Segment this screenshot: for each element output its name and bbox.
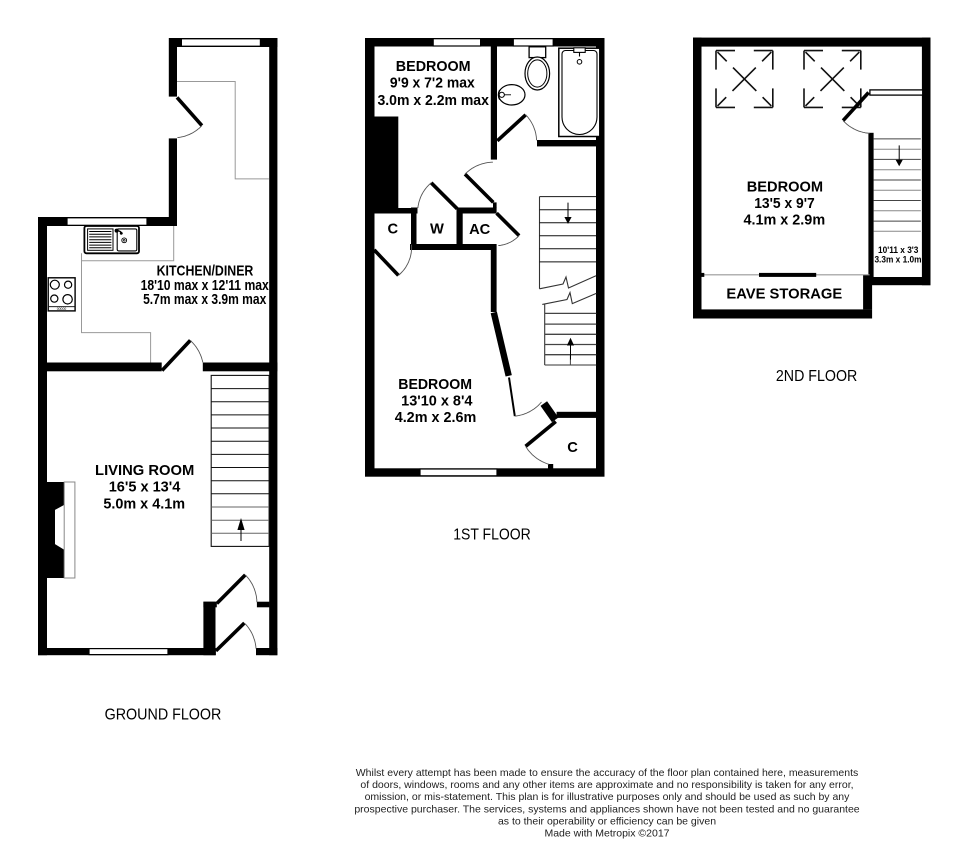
svg-text:00000: 00000 bbox=[57, 307, 67, 311]
svg-text:prospective purchaser. The ser: prospective purchaser. The services, sys… bbox=[354, 803, 859, 815]
svg-text:C: C bbox=[567, 440, 578, 456]
svg-text:of doors, windows, rooms and a: of doors, windows, rooms and any other i… bbox=[360, 779, 853, 791]
svg-text:BEDROOM: BEDROOM bbox=[747, 180, 823, 196]
svg-text:Made with Metropix ©2017: Made with Metropix ©2017 bbox=[544, 828, 669, 840]
svg-text:5.0m x 4.1m: 5.0m x 4.1m bbox=[103, 496, 185, 512]
svg-text:Whilst every attempt has been: Whilst every attempt has been made to en… bbox=[356, 767, 859, 779]
svg-text:5.7m max x 3.9m max: 5.7m max x 3.9m max bbox=[143, 292, 267, 308]
svg-text:16'5 x 13'4: 16'5 x 13'4 bbox=[109, 480, 181, 496]
svg-text:EAVE STORAGE: EAVE STORAGE bbox=[726, 287, 842, 303]
svg-text:GROUND FLOOR: GROUND FLOOR bbox=[105, 706, 222, 723]
svg-text:4.1m x 2.9m: 4.1m x 2.9m bbox=[743, 213, 825, 229]
svg-text:LIVING ROOM: LIVING ROOM bbox=[95, 463, 194, 479]
svg-text:3.3m x 1.0m: 3.3m x 1.0m bbox=[874, 255, 921, 265]
svg-text:1ST FLOOR: 1ST FLOOR bbox=[453, 527, 531, 544]
svg-text:13'5 x 9'7: 13'5 x 9'7 bbox=[754, 196, 815, 212]
svg-text:as to their operability or eff: as to their operability or efficiency ca… bbox=[498, 816, 716, 828]
svg-text:9'9 x 7'2 max: 9'9 x 7'2 max bbox=[390, 76, 476, 92]
svg-text:13'10 x 8'4: 13'10 x 8'4 bbox=[401, 394, 473, 410]
svg-text:omission, or mis-statement. Th: omission, or mis-statement. This plan is… bbox=[365, 791, 851, 803]
svg-text:C: C bbox=[387, 222, 398, 238]
svg-text:AC: AC bbox=[469, 222, 491, 238]
svg-text:3.0m x 2.2m max: 3.0m x 2.2m max bbox=[378, 93, 490, 109]
svg-text:2ND FLOOR: 2ND FLOOR bbox=[776, 368, 857, 385]
svg-text:4.2m x 2.6m: 4.2m x 2.6m bbox=[395, 410, 477, 426]
svg-text:BEDROOM: BEDROOM bbox=[398, 377, 472, 393]
svg-text:BEDROOM: BEDROOM bbox=[396, 59, 471, 75]
svg-text:W: W bbox=[430, 222, 444, 238]
svg-text:10'11 x 3'3: 10'11 x 3'3 bbox=[878, 245, 918, 255]
